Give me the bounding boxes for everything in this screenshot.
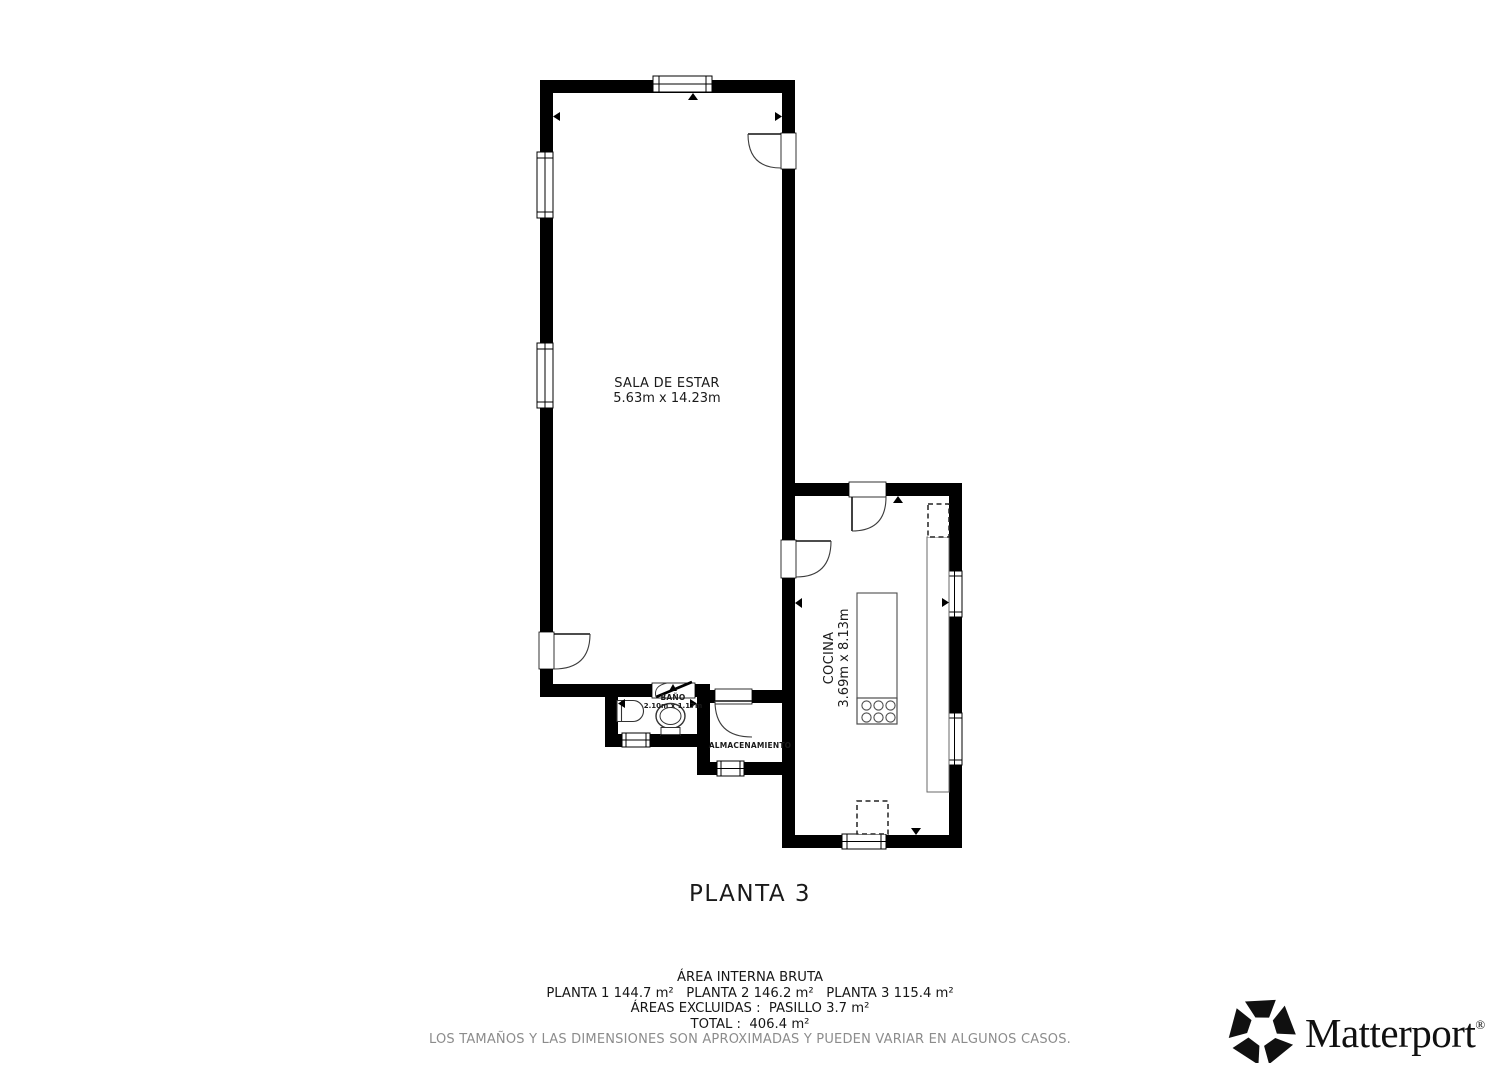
room-label-bano: BAÑO 2.10m x 1.17m (613, 694, 733, 711)
stove (857, 698, 897, 724)
kitchen-counter (927, 537, 949, 792)
marker-up-icon (893, 496, 903, 503)
summary-title: ÁREA INTERNA BRUTA (450, 970, 1050, 986)
window-bath-bottom (622, 733, 650, 747)
door-sala-to-kitchen (796, 541, 831, 577)
matterport-pinwheel-icon (1227, 995, 1297, 1063)
disclaimer-text: LOS TAMAÑOS Y LAS DIMENSIONES SON APROXI… (300, 1032, 1200, 1047)
marker-down-icon (911, 828, 921, 835)
summary-excluded-areas: ÁREAS EXCLUIDAS : PASILLO 3.7 m² (450, 1001, 1050, 1017)
door-kitchen-top (852, 497, 886, 531)
opening-sala-to-kitchen (781, 540, 796, 578)
kitchen-island (857, 593, 897, 699)
room-label-cocina: COCINA 3.69m x 8.13m (820, 578, 854, 738)
burner-icon (886, 713, 895, 722)
window-sala-top (653, 76, 712, 92)
room-name: SALA DE ESTAR (542, 376, 792, 391)
floor-plan-page: SALA DE ESTAR 5.63m x 14.23m COCINA 3.69… (0, 0, 1500, 1061)
door-sala-entry (748, 134, 781, 168)
matterport-logo: Matterport® (1227, 992, 1485, 1066)
windows (537, 76, 962, 849)
summary-total-area: TOTAL : 406.4 m² (450, 1017, 1050, 1033)
window-sala-left-upper (537, 152, 553, 218)
walls (540, 80, 962, 848)
opening-sala-entry (781, 133, 796, 169)
burner-icon (874, 713, 883, 722)
room-name: BAÑO (613, 694, 733, 702)
matterport-wordmark: Matterport® (1305, 992, 1485, 1066)
floor-title: PLANTA 3 (600, 881, 900, 907)
room-label-sala-de-estar: SALA DE ESTAR 5.63m x 14.23m (542, 376, 792, 406)
wall-kitchen-right (949, 483, 962, 848)
door-sala-left (554, 634, 590, 669)
marker-right-icon (775, 112, 782, 121)
room-label-almacenamiento: ALMACENAMIENTO (690, 742, 810, 750)
registered-trademark-icon: ® (1475, 1017, 1484, 1032)
wall-sala-kitchen-shared (782, 80, 795, 848)
area-summary: ÁREA INTERNA BRUTA PLANTA 1 144.7 m² PLA… (450, 970, 1050, 1032)
appliance-dashed-bottom (857, 801, 888, 834)
appliance-dashed-top (928, 504, 949, 537)
burner-icon (886, 701, 895, 710)
room-name: COCINA (822, 578, 837, 738)
burner-icon (874, 701, 883, 710)
marker-left-icon (553, 112, 560, 121)
room-dimensions: 2.10m x 1.17m (613, 702, 733, 711)
wall-storage-bottom (697, 762, 795, 775)
room-name: ALMACENAMIENTO (690, 742, 810, 750)
marker-up-icon (688, 93, 698, 100)
opening-kitchen-top (849, 482, 886, 497)
window-storage-bottom (717, 761, 744, 776)
burner-icon (862, 713, 871, 722)
room-dimensions: 3.69m x 8.13m (837, 578, 852, 738)
brand-name: Matterport (1305, 1010, 1475, 1056)
window-kitchen-bottom (842, 834, 886, 849)
summary-floor-areas: PLANTA 1 144.7 m² PLANTA 2 146.2 m² PLAN… (450, 986, 1050, 1002)
room-dimensions: 5.63m x 14.23m (542, 391, 792, 406)
burner-icon (862, 701, 871, 710)
opening-sala-left (539, 632, 554, 669)
marker-left-icon (795, 598, 802, 608)
